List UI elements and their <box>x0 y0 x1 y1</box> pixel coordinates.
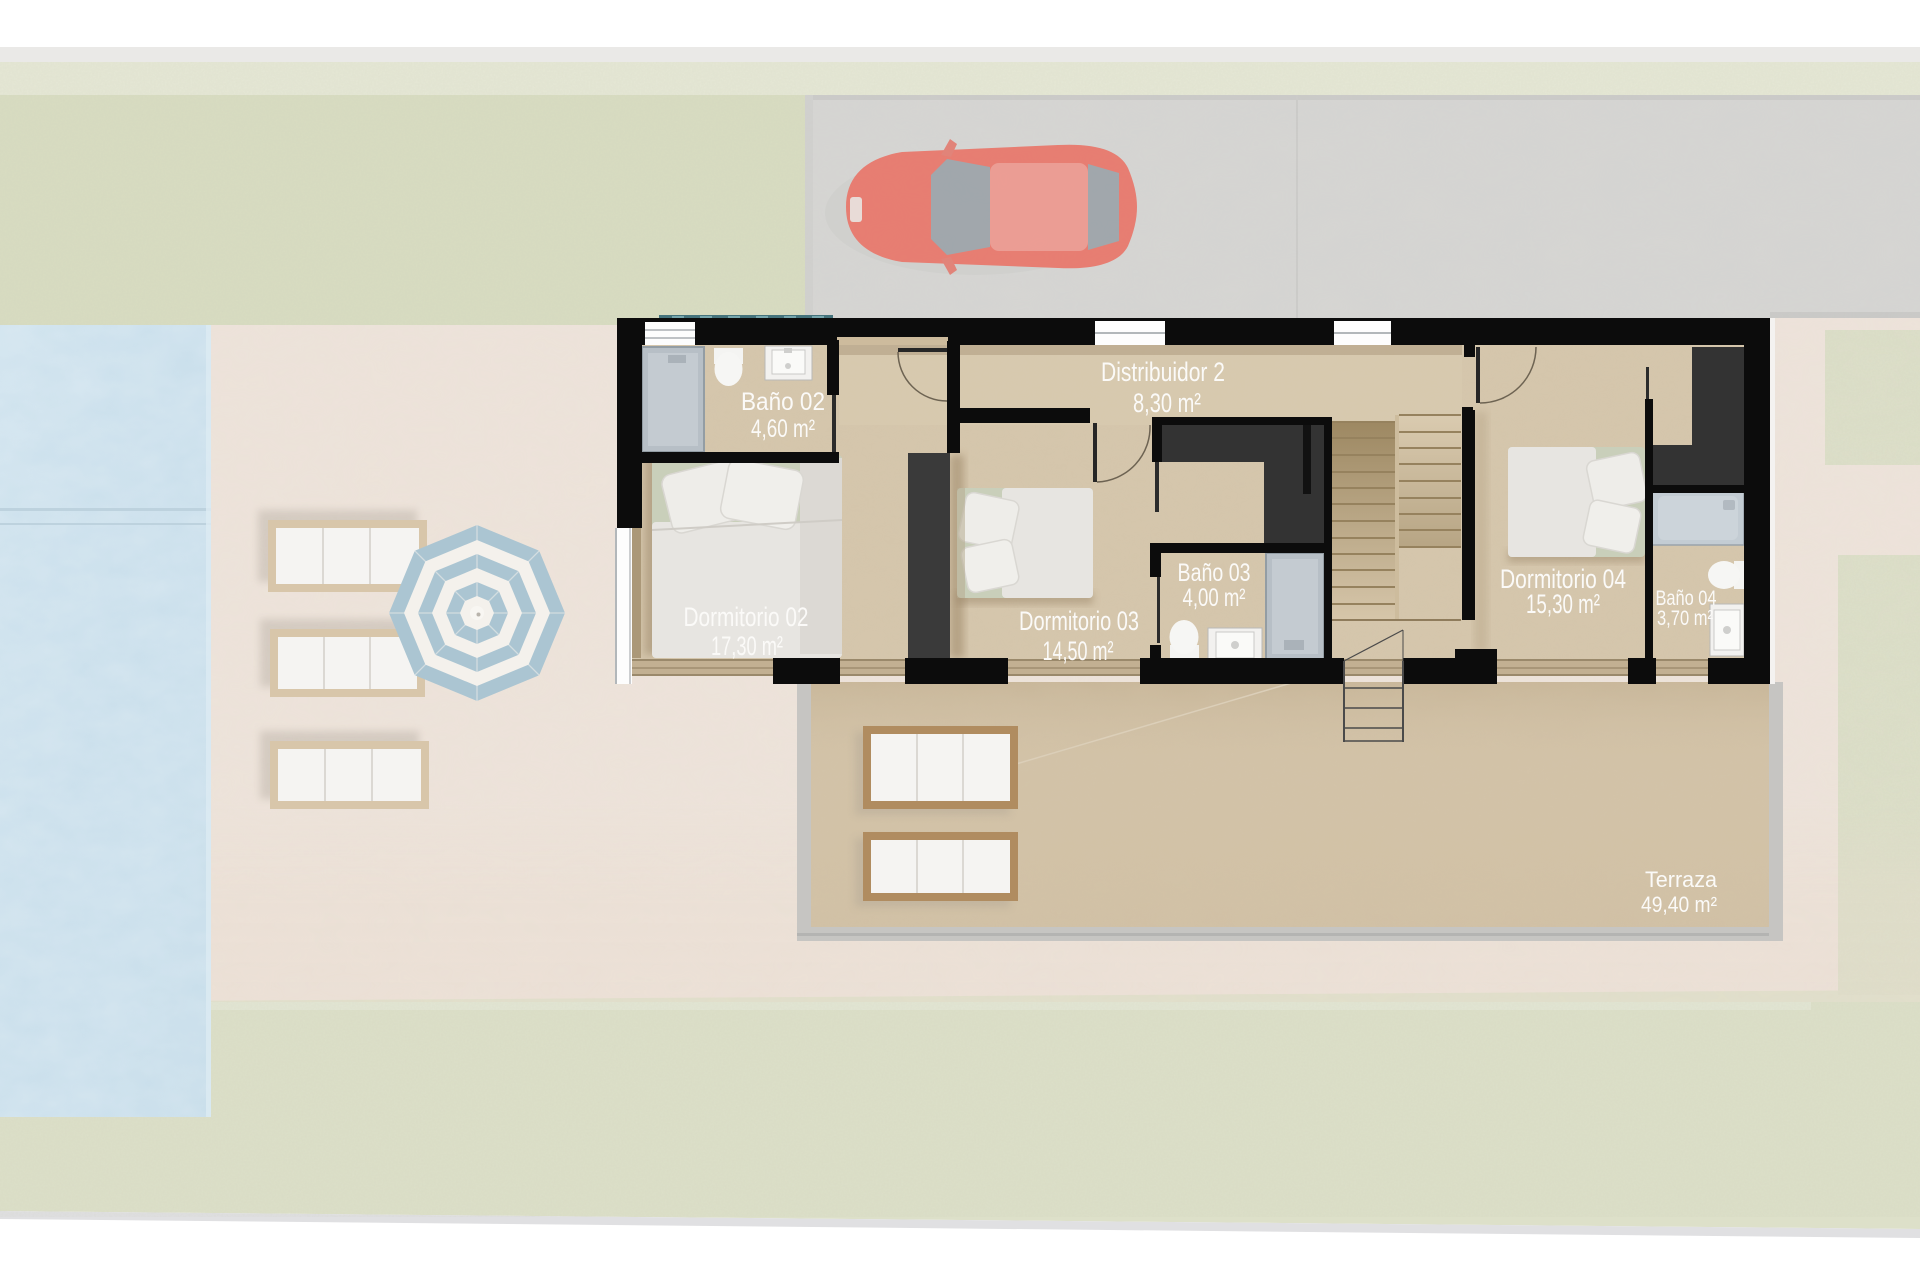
svg-text:17,30 m²: 17,30 m² <box>711 631 783 661</box>
svg-text:4,60 m²: 4,60 m² <box>751 415 815 443</box>
svg-text:49,40 m²: 49,40 m² <box>1641 892 1717 917</box>
svg-text:Baño 03: Baño 03 <box>1178 559 1251 587</box>
svg-text:Distribuidor 2: Distribuidor 2 <box>1101 357 1225 387</box>
svg-text:4,00 m²: 4,00 m² <box>1183 584 1246 612</box>
svg-text:Terraza: Terraza <box>1645 867 1718 892</box>
svg-text:Baño 02: Baño 02 <box>741 388 825 416</box>
svg-text:Dormitorio 03: Dormitorio 03 <box>1019 606 1139 636</box>
svg-text:8,30 m²: 8,30 m² <box>1133 388 1201 418</box>
svg-text:14,50 m²: 14,50 m² <box>1043 636 1114 666</box>
svg-text:Dormitorio 02: Dormitorio 02 <box>684 602 809 632</box>
svg-text:3,70 m²: 3,70 m² <box>1657 607 1713 630</box>
svg-text:15,30 m²: 15,30 m² <box>1526 589 1600 619</box>
